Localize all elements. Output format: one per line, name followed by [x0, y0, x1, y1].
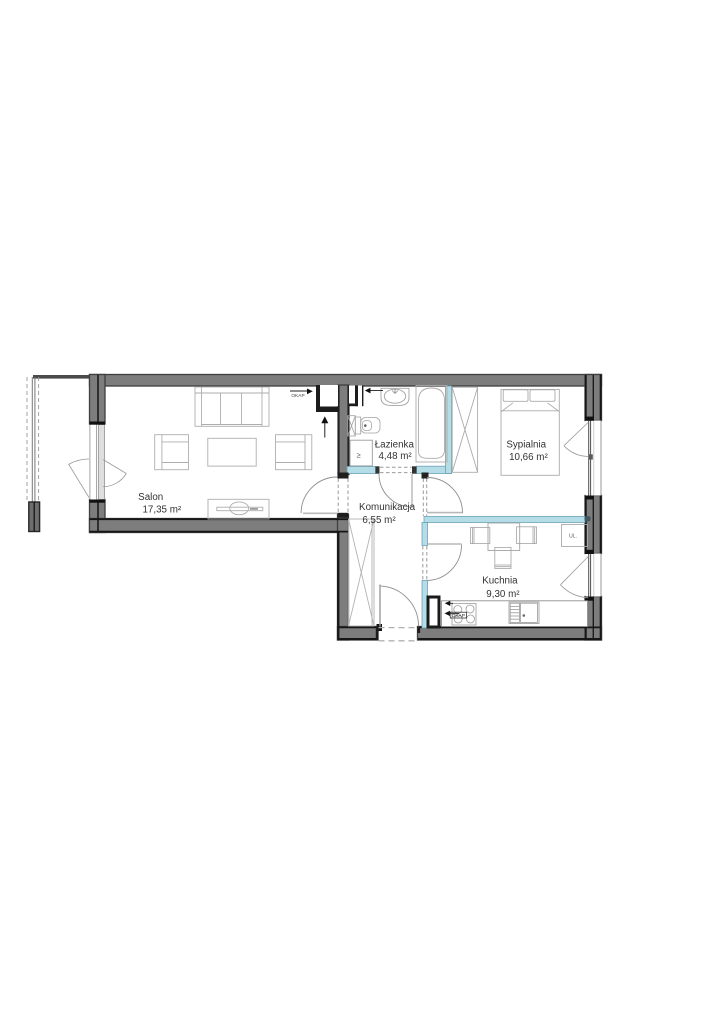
svg-text:10,66 m²: 10,66 m²	[509, 452, 548, 463]
svg-text:6,55 m²: 6,55 m²	[362, 515, 396, 526]
svg-text:9,30 m²: 9,30 m²	[486, 589, 520, 600]
svg-text:Kuchnia: Kuchnia	[482, 576, 518, 587]
svg-text:OKAP: OKAP	[452, 613, 465, 619]
svg-text:≥: ≥	[357, 451, 361, 460]
svg-text:Sypialnia: Sypialnia	[506, 439, 546, 450]
svg-text:17,35 m²: 17,35 m²	[142, 505, 181, 516]
svg-text:Komunikacja: Komunikacja	[359, 502, 416, 513]
svg-text:OKAP: OKAP	[291, 393, 304, 399]
svg-text:UL.: UL.	[569, 534, 577, 540]
svg-text:4,48 m²: 4,48 m²	[378, 451, 412, 462]
svg-text:Łazienka: Łazienka	[375, 440, 415, 451]
svg-text:Salon: Salon	[138, 492, 163, 503]
